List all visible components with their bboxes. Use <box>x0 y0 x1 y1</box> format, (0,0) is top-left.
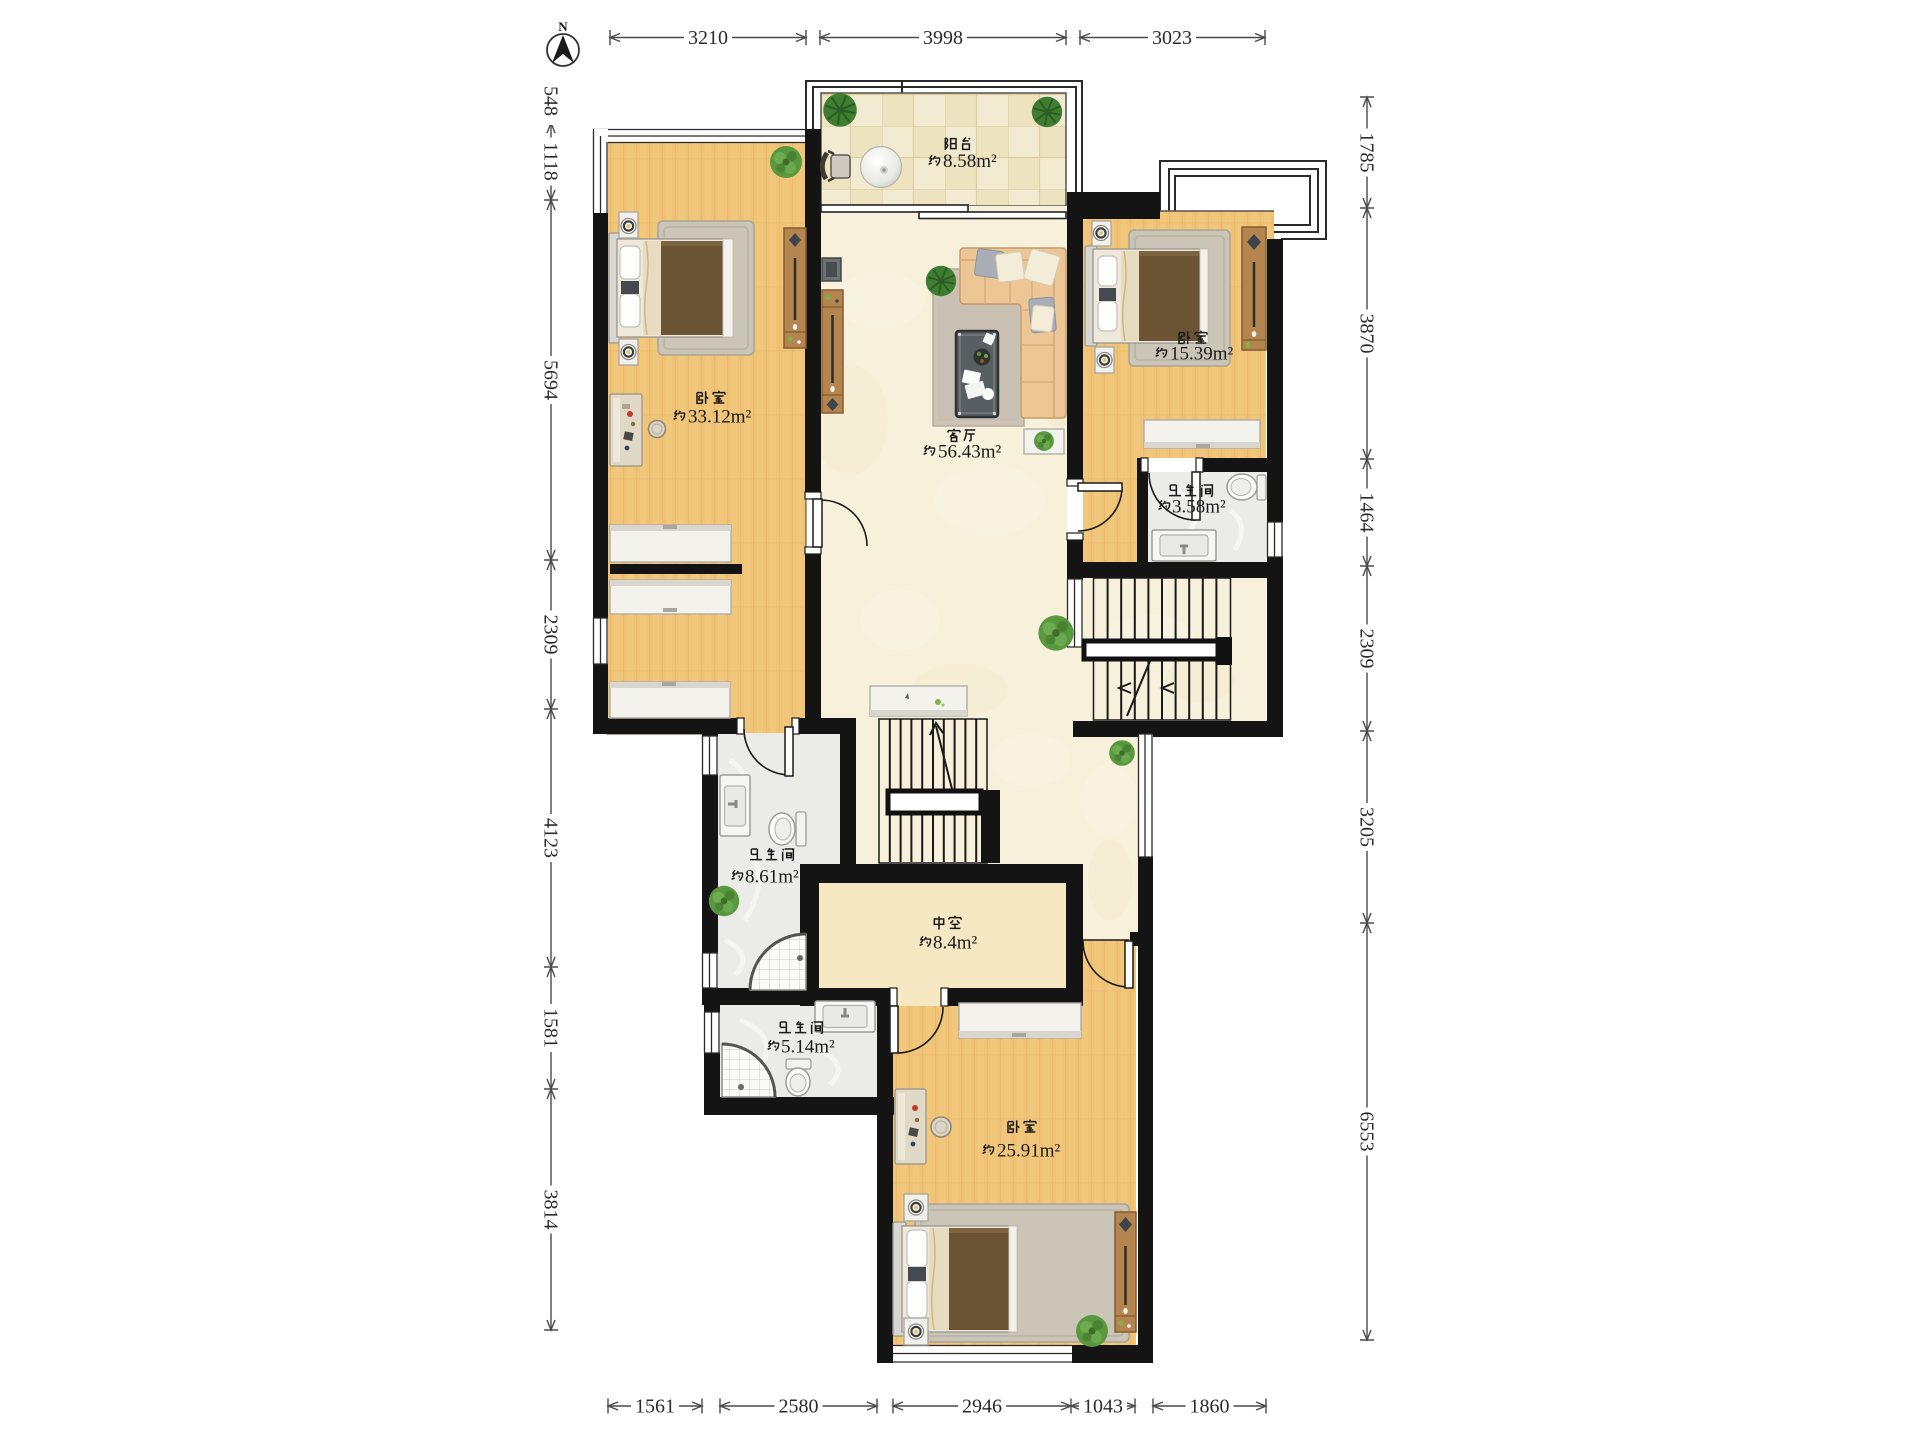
svg-text:8.58m²: 8.58m² <box>943 151 997 172</box>
svg-text:2309: 2309 <box>1356 629 1378 669</box>
svg-text:5.14m²: 5.14m² <box>781 1037 835 1058</box>
svg-text:15.39m²: 15.39m² <box>1170 344 1234 365</box>
svg-text:8.4m²: 8.4m² <box>933 933 978 954</box>
svg-text:25.91m²: 25.91m² <box>997 1141 1061 1162</box>
svg-text:1581: 1581 <box>540 1008 562 1048</box>
svg-text:3814: 3814 <box>540 1190 562 1230</box>
svg-text:N: N <box>558 19 568 34</box>
svg-text:548: 548 <box>540 86 562 116</box>
svg-text:1043: 1043 <box>1083 1396 1123 1418</box>
svg-text:3870: 3870 <box>1356 314 1378 354</box>
svg-text:8.61m²: 8.61m² <box>745 867 799 888</box>
svg-text:2580: 2580 <box>779 1396 819 1418</box>
svg-text:1561: 1561 <box>635 1396 675 1418</box>
svg-text:2946: 2946 <box>962 1396 1002 1418</box>
svg-text:3023: 3023 <box>1152 27 1192 49</box>
svg-text:1118: 1118 <box>540 142 562 181</box>
svg-text:3205: 3205 <box>1356 807 1378 847</box>
svg-text:3210: 3210 <box>688 27 728 49</box>
svg-text:1464: 1464 <box>1356 493 1378 533</box>
svg-text:56.43m²: 56.43m² <box>938 442 1002 463</box>
svg-text:6553: 6553 <box>1356 1112 1378 1152</box>
svg-text:5694: 5694 <box>540 360 562 400</box>
svg-text:2309: 2309 <box>540 615 562 655</box>
svg-text:33.12m²: 33.12m² <box>688 407 752 428</box>
svg-text:3.58m²: 3.58m² <box>1172 497 1226 518</box>
svg-text:1785: 1785 <box>1356 133 1378 173</box>
svg-text:4123: 4123 <box>540 818 562 858</box>
svg-text:1860: 1860 <box>1190 1396 1230 1418</box>
svg-text:3998: 3998 <box>923 27 963 49</box>
